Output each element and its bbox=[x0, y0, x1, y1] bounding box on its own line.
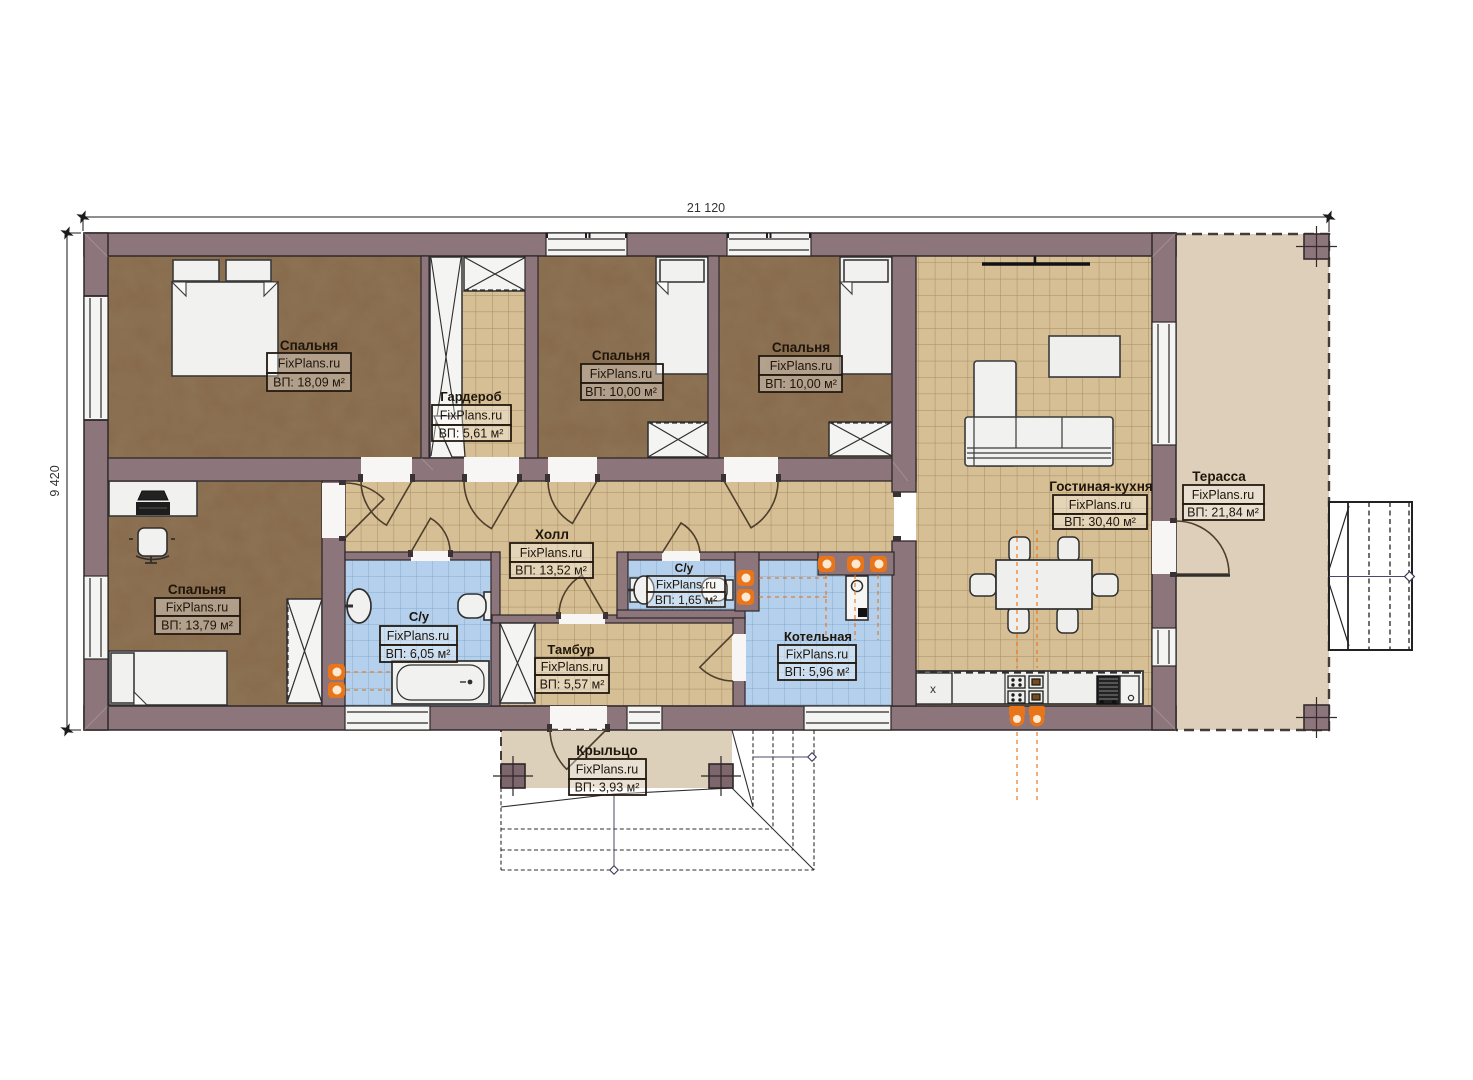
svg-text:ВП: 13,79 м²: ВП: 13,79 м² bbox=[161, 619, 233, 633]
svg-text:FixPlans.ru: FixPlans.ru bbox=[520, 546, 583, 560]
svg-text:FixPlans.ru: FixPlans.ru bbox=[541, 660, 604, 674]
svg-text:FixPlans.ru: FixPlans.ru bbox=[387, 629, 450, 643]
svg-text:Спальня: Спальня bbox=[280, 338, 338, 353]
svg-text:ВП: 10,00 м²: ВП: 10,00 м² bbox=[765, 377, 837, 391]
svg-text:ВП: 21,84 м²: ВП: 21,84 м² bbox=[1187, 506, 1259, 520]
svg-text:ВП: 18,09 м²: ВП: 18,09 м² bbox=[273, 376, 345, 390]
svg-text:ВП: 3,93 м²: ВП: 3,93 м² bbox=[575, 781, 640, 795]
svg-text:Гардероб: Гардероб bbox=[440, 389, 501, 404]
svg-text:ВП: 10,00 м²: ВП: 10,00 м² bbox=[585, 385, 657, 399]
svg-text:FixPlans.ru: FixPlans.ru bbox=[656, 578, 716, 592]
svg-text:FixPlans.ru: FixPlans.ru bbox=[166, 601, 229, 615]
svg-text:ВП: 6,05 м²: ВП: 6,05 м² bbox=[386, 647, 451, 661]
svg-text:Гостиная-кухня: Гостиная-кухня bbox=[1049, 479, 1152, 494]
svg-text:FixPlans.ru: FixPlans.ru bbox=[1069, 498, 1132, 512]
svg-text:ВП: 13,52 м²: ВП: 13,52 м² bbox=[515, 564, 587, 578]
svg-text:ВП: 1,65 м²: ВП: 1,65 м² bbox=[655, 593, 717, 607]
svg-text:21 120: 21 120 bbox=[687, 201, 725, 215]
svg-text:Спальня: Спальня bbox=[772, 340, 830, 355]
svg-text:Холл: Холл bbox=[535, 527, 569, 542]
svg-text:FixPlans.ru: FixPlans.ru bbox=[1192, 488, 1255, 502]
svg-text:FixPlans.ru: FixPlans.ru bbox=[770, 359, 833, 373]
svg-text:Крыльцо: Крыльцо bbox=[576, 743, 637, 758]
svg-text:С/у: С/у bbox=[409, 609, 430, 624]
svg-text:FixPlans.ru: FixPlans.ru bbox=[786, 648, 849, 662]
svg-text:FixPlans.ru: FixPlans.ru bbox=[576, 763, 639, 777]
svg-text:С/у: С/у bbox=[675, 561, 694, 575]
svg-text:FixPlans.ru: FixPlans.ru bbox=[278, 357, 341, 371]
svg-text:ВП: 5,57 м²: ВП: 5,57 м² bbox=[540, 678, 605, 692]
svg-text:ВП: 5,96 м²: ВП: 5,96 м² bbox=[785, 665, 850, 679]
svg-text:ВП: 5,61 м²: ВП: 5,61 м² bbox=[439, 427, 504, 441]
svg-text:ВП: 30,40 м²: ВП: 30,40 м² bbox=[1064, 515, 1136, 529]
svg-text:Тамбур: Тамбур bbox=[547, 642, 594, 657]
svg-text:9 420: 9 420 bbox=[48, 465, 62, 496]
svg-text:FixPlans.ru: FixPlans.ru bbox=[590, 367, 653, 381]
svg-text:x: x bbox=[930, 682, 936, 696]
svg-text:Спальня: Спальня bbox=[168, 582, 226, 597]
svg-text:Спальня: Спальня bbox=[592, 348, 650, 363]
svg-text:Терасса: Терасса bbox=[1192, 469, 1246, 484]
svg-text:FixPlans.ru: FixPlans.ru bbox=[440, 409, 503, 423]
svg-text:Котельная: Котельная bbox=[784, 629, 852, 644]
